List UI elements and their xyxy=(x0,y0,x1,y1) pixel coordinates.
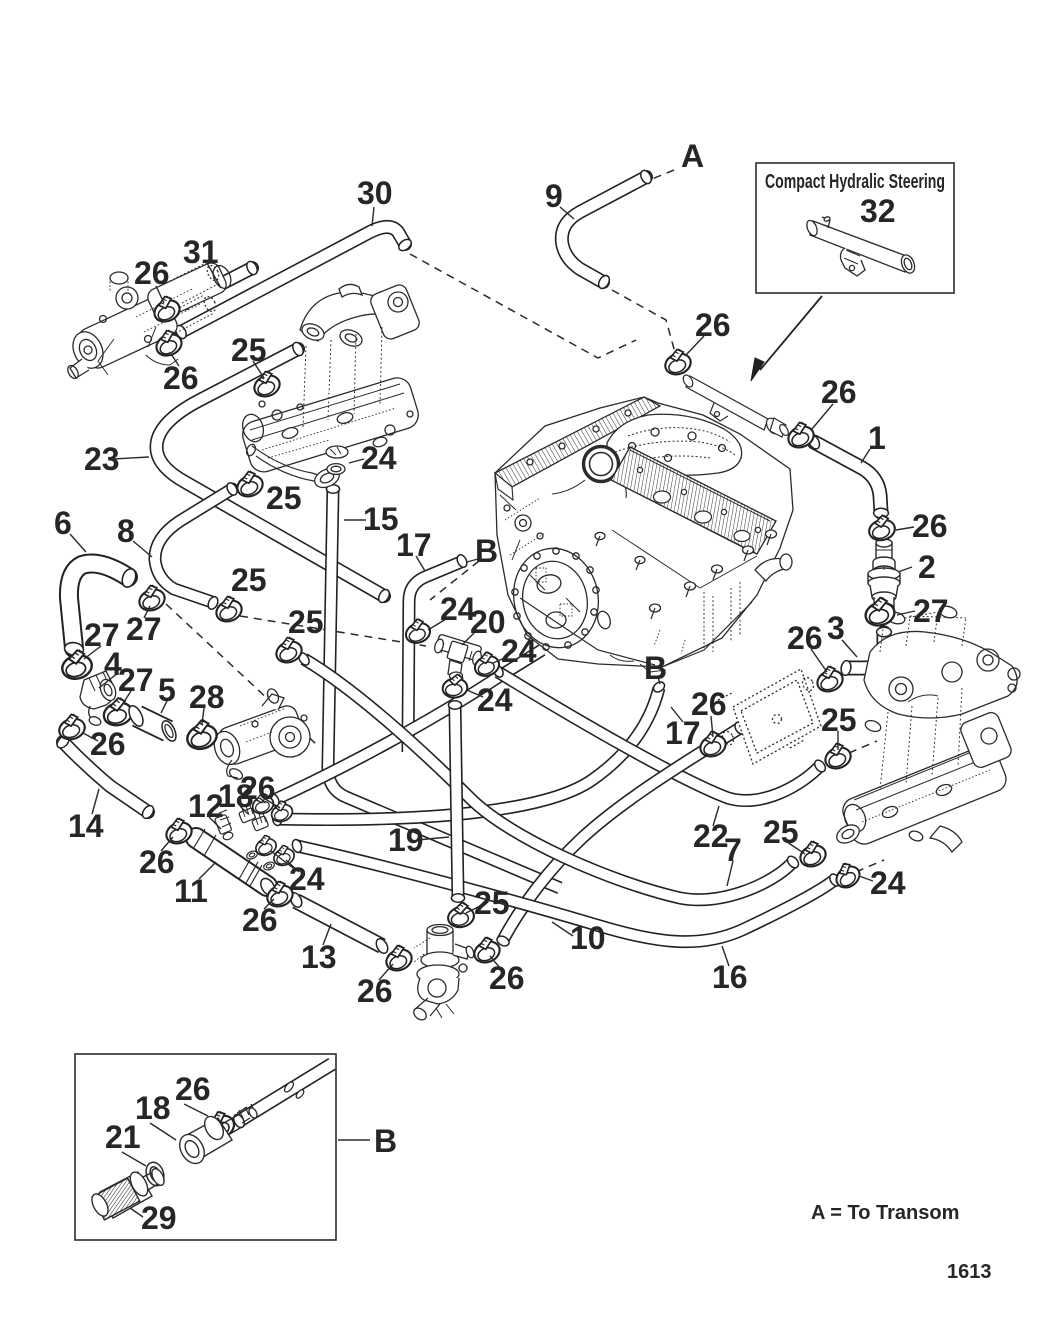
svg-text:26: 26 xyxy=(163,360,199,396)
svg-text:A: A xyxy=(681,138,704,174)
svg-text:25: 25 xyxy=(231,562,267,598)
svg-text:25: 25 xyxy=(821,702,857,738)
svg-text:26: 26 xyxy=(489,960,525,996)
svg-text:B: B xyxy=(644,650,667,686)
svg-text:15: 15 xyxy=(363,501,399,537)
svg-text:26: 26 xyxy=(691,686,727,722)
svg-text:6: 6 xyxy=(54,505,72,541)
svg-text:16: 16 xyxy=(712,959,748,995)
svg-text:8: 8 xyxy=(117,513,135,549)
svg-text:26: 26 xyxy=(90,726,126,762)
svg-text:26: 26 xyxy=(787,620,823,656)
svg-text:25: 25 xyxy=(474,885,510,921)
svg-text:26: 26 xyxy=(695,307,731,343)
svg-text:10: 10 xyxy=(570,920,606,956)
svg-text:31: 31 xyxy=(183,234,219,270)
svg-text:9: 9 xyxy=(545,178,563,214)
svg-text:24: 24 xyxy=(501,633,537,669)
svg-text:14: 14 xyxy=(68,808,104,844)
svg-text:B: B xyxy=(374,1123,397,1159)
svg-text:1613: 1613 xyxy=(947,1261,992,1283)
svg-text:26: 26 xyxy=(134,255,170,291)
svg-text:2: 2 xyxy=(918,549,936,585)
svg-text:13: 13 xyxy=(301,939,337,975)
svg-text:A = To Transom: A = To Transom xyxy=(811,1202,959,1224)
svg-text:21: 21 xyxy=(105,1119,141,1155)
svg-text:24: 24 xyxy=(289,861,325,897)
svg-text:30: 30 xyxy=(357,175,393,211)
svg-text:5: 5 xyxy=(158,672,176,708)
svg-text:23: 23 xyxy=(84,441,120,477)
svg-text:26: 26 xyxy=(821,374,857,410)
svg-text:25: 25 xyxy=(266,480,302,516)
svg-text:25: 25 xyxy=(763,814,799,850)
svg-text:Compact Hydralic Steering: Compact Hydralic Steering xyxy=(765,171,945,193)
svg-text:24: 24 xyxy=(361,440,397,476)
svg-text:11: 11 xyxy=(174,873,208,909)
svg-text:25: 25 xyxy=(288,604,324,640)
svg-text:19: 19 xyxy=(388,822,424,858)
svg-text:26: 26 xyxy=(242,902,278,938)
svg-text:26: 26 xyxy=(139,844,175,880)
svg-text:B: B xyxy=(475,533,498,569)
svg-text:1: 1 xyxy=(868,420,886,456)
svg-text:32: 32 xyxy=(860,193,896,229)
svg-text:24: 24 xyxy=(870,865,906,901)
svg-text:26: 26 xyxy=(175,1071,211,1107)
svg-text:17: 17 xyxy=(396,527,432,563)
svg-text:27: 27 xyxy=(126,611,162,647)
svg-text:28: 28 xyxy=(189,679,225,715)
svg-text:27: 27 xyxy=(913,593,949,629)
svg-text:26: 26 xyxy=(912,508,948,544)
svg-text:29: 29 xyxy=(141,1200,177,1236)
svg-text:27: 27 xyxy=(118,662,154,698)
svg-text:24: 24 xyxy=(477,682,513,718)
svg-text:25: 25 xyxy=(231,332,267,368)
svg-text:26: 26 xyxy=(240,770,276,806)
svg-text:26: 26 xyxy=(357,973,393,1009)
svg-text:7: 7 xyxy=(724,832,742,868)
svg-text:3: 3 xyxy=(827,610,845,646)
